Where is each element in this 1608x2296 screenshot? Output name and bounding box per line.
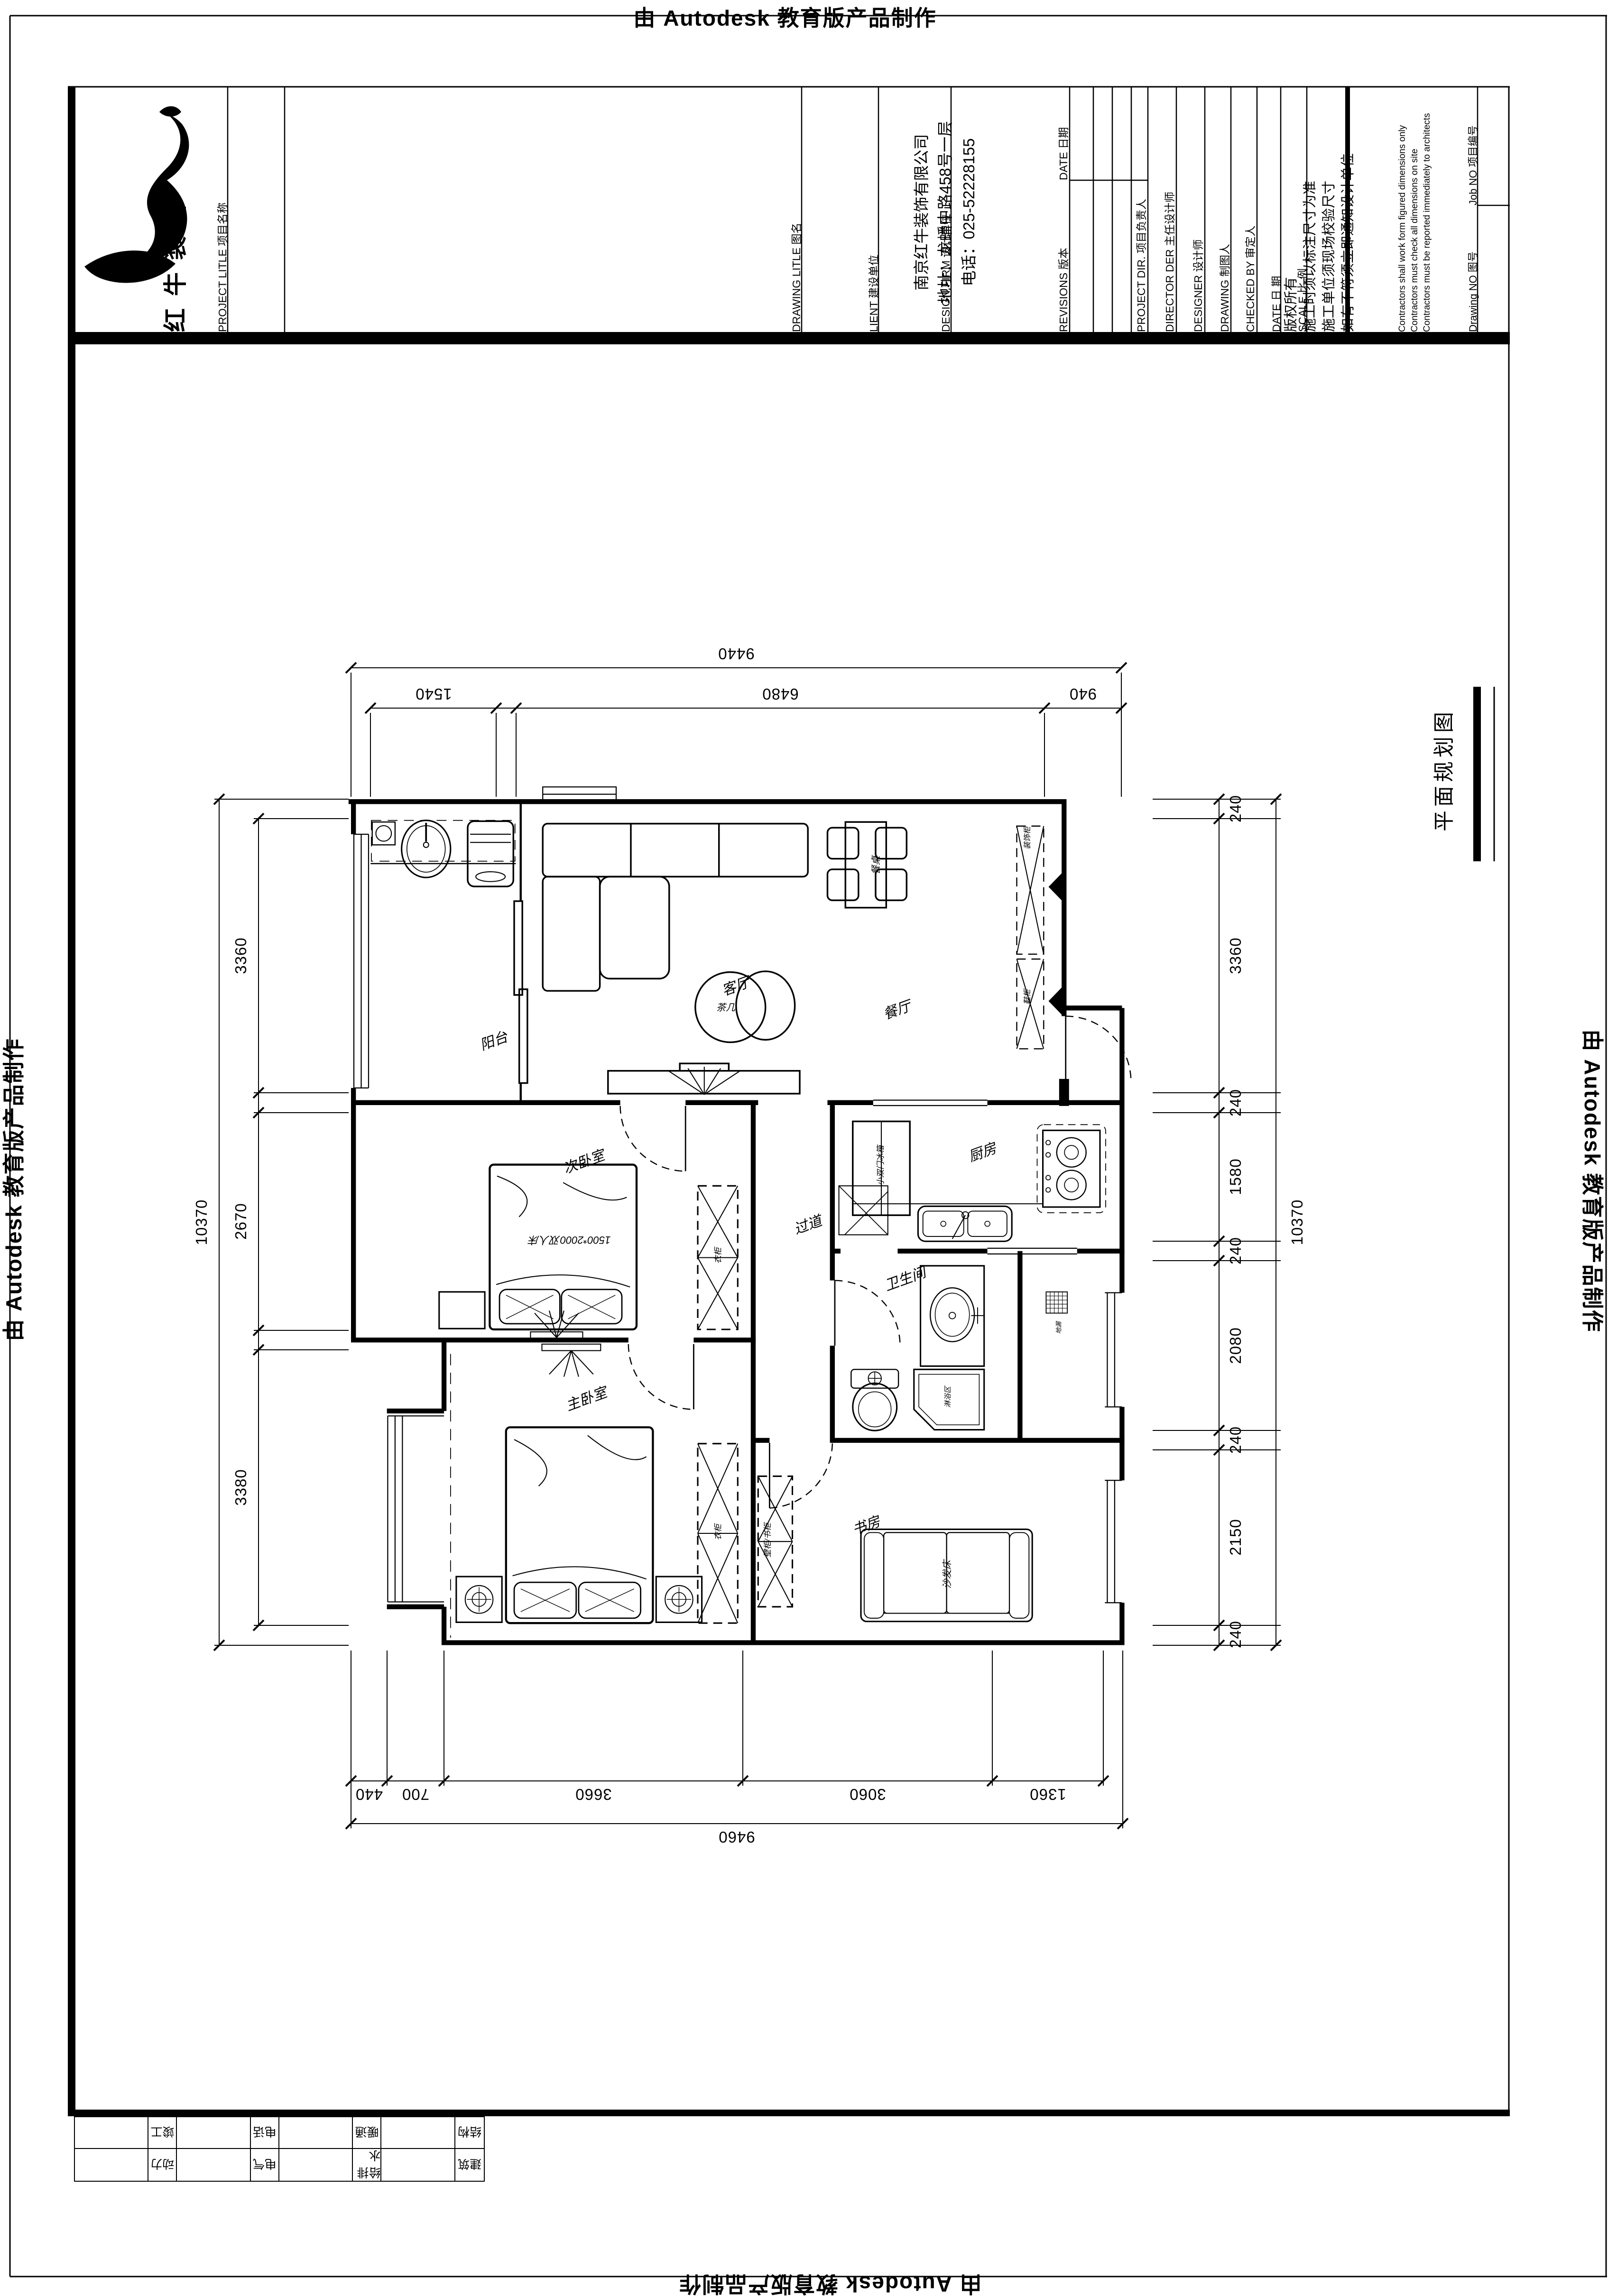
discipline-cell: 结构: [454, 2117, 484, 2148]
design-firm-info: 南京红牛装饰有限公司 地址：龙蟠中路458号一层 电话：025-52228155: [910, 92, 981, 332]
dim-right-seg: 2080: [1226, 1308, 1245, 1383]
sheet-border: [10, 16, 1607, 2277]
study-furniture: [758, 1476, 1032, 1622]
door-arc-bedroom2: [620, 1106, 686, 1171]
discipline-cell: 暖通: [352, 2117, 382, 2148]
dim-bottom-overall: 9460: [689, 1827, 784, 1846]
label-dining-table: 餐桌: [869, 847, 882, 875]
job-no-label: Job NO 项目编号: [1465, 94, 1482, 205]
dim-bottom-seg: 1360: [1000, 1785, 1095, 1804]
label-wardrobe2: 衣柜: [712, 1248, 723, 1264]
drawing-sheet: 由 Autodesk 教育版产品制作 由 Autodesk 教育版产品制作 由 …: [0, 0, 1608, 2296]
dim-right-seg: 240: [1226, 1402, 1245, 1478]
firm-address: 地址：龙蟠中路458号一层: [933, 92, 957, 332]
dim-bottom-seg: 3060: [820, 1785, 915, 1804]
nightstand: [439, 1292, 485, 1328]
dim-right-seg: 3360: [1226, 918, 1245, 994]
label-shower: 淋浴区: [943, 1386, 952, 1408]
discipline-blank: [75, 2117, 148, 2148]
discipline-row: 结构 暖通 电话 竣工: [75, 2117, 484, 2149]
note-line: 版权所有: [1282, 92, 1301, 332]
dim-top-seg: 6480: [733, 684, 828, 703]
discipline-blank: [177, 2149, 250, 2181]
designer-label: DESIGNER 设计师: [1190, 92, 1207, 332]
label-floor-drain: 地漏: [1054, 1321, 1063, 1334]
note-line: Contractors must check all dimensions on…: [1409, 92, 1421, 332]
firm-name: 南京红牛装饰有限公司: [910, 92, 933, 332]
discipline-table: 建筑 给排水 电气 动力 结构 暖通 电话 竣工: [74, 2116, 485, 2182]
firm-phone: 电话：025-52228155: [957, 92, 981, 332]
discipline-blank: [177, 2117, 250, 2148]
note-line: 施工单位须现场校验尺寸: [1320, 92, 1339, 332]
discipline-blank: [382, 2149, 455, 2181]
dim-left-overall: 10370: [192, 1184, 211, 1260]
dim-bottom-seg: 3660: [546, 1785, 641, 1804]
drawing-by-label: DRAWING 制图人: [1216, 92, 1233, 332]
drawing-title-bars: [1473, 687, 1494, 861]
discipline-cell: 建筑: [454, 2149, 484, 2181]
bedroom2-furniture: [439, 1165, 738, 1338]
watermark-right: 由 Autodesk 教育版产品制作: [1578, 979, 1608, 1383]
dim-top-overall: 9440: [689, 644, 784, 663]
dim-right-overall: 10370: [1288, 1184, 1307, 1260]
entry-wall-fill: [1059, 1079, 1069, 1106]
discipline-blank: [75, 2149, 148, 2181]
sliding-door-panel: [519, 989, 527, 1083]
dining-chair: [827, 828, 858, 858]
revision-date-label: DATE 日期: [1055, 92, 1072, 180]
walls: [349, 802, 1125, 1642]
drawing-title-label: DRAWING LITLE 图名: [788, 92, 805, 332]
dim-right-seg: 240: [1226, 1065, 1245, 1141]
pillow-icon: [499, 1290, 560, 1324]
master-bed: [506, 1427, 653, 1623]
label-bed2: 1500*2000双人床: [529, 1233, 610, 1248]
discipline-cell: 电话: [250, 2117, 279, 2148]
dim-right-seg: 240: [1226, 1596, 1245, 1672]
living-room-furniture: [543, 824, 808, 1095]
dim-right-seg: 1580: [1226, 1139, 1245, 1215]
label-deco-cabinet: 装饰柜: [1021, 827, 1032, 849]
dim-top-seg: 940: [1035, 684, 1130, 703]
logo-text: 红牛装饰: [161, 95, 190, 332]
dining-chair: [827, 869, 858, 900]
client-label: LIENT 建设单位: [865, 92, 882, 332]
dim-top-seg: 1540: [386, 684, 481, 703]
stove-icon: [1043, 1130, 1100, 1207]
balcony-fixtures: [370, 821, 516, 886]
dim-left-seg: 3360: [231, 918, 250, 994]
discipline-cell: 竣工: [148, 2117, 177, 2148]
door-arc-master: [628, 1344, 694, 1410]
note-line: Contractors must be reported immediately…: [1421, 92, 1433, 332]
sliding-door-panel: [514, 901, 522, 995]
label-shoe-cabinet: 鞋柜: [1021, 989, 1032, 1005]
discipline-blank: [279, 2149, 352, 2181]
ceiling-light-icon: [549, 1351, 593, 1377]
project-dir-label: PROJECT DIR. 项目负责人: [1133, 92, 1150, 332]
discipline-cell: 给排水: [352, 2149, 382, 2181]
dim-right-seg: 240: [1226, 1213, 1245, 1289]
drawing-no-label: Drawing NO 图号: [1465, 211, 1482, 332]
discipline-row: 建筑 给排水 电气 动力: [75, 2149, 484, 2181]
project-title-label: PROJECT LITLE 项目名称: [214, 92, 231, 332]
discipline-cell: 动力: [148, 2149, 177, 2181]
revisions-label: REVISIONS 版本: [1055, 190, 1072, 332]
notes-cn: 版权所有 施工时须以标注尺寸为准 施工单位须现场校验尺寸 如有不符须立即通知设计…: [1282, 92, 1358, 332]
checked-by-label: CHECKED BY 审定人: [1242, 92, 1259, 332]
basin-icon: [930, 1288, 974, 1342]
doors: [514, 901, 1131, 1508]
dining-furniture: [827, 822, 1044, 1049]
title-block-frame: [68, 87, 1510, 2116]
label-fridge: 小双门冰箱: [874, 1145, 886, 1186]
floor-plan: [349, 787, 1131, 1642]
cad-linework: [0, 0, 1608, 2296]
note-line: 如有不符须立即通知设计单位: [1339, 92, 1358, 332]
watermark-bottom: 由 Autodesk 教育版产品制作: [631, 2270, 1029, 2296]
pillow-icon: [562, 1290, 622, 1324]
note-line: 施工时须以标注尺寸为准: [1301, 92, 1320, 332]
discipline-cell: 电气: [250, 2149, 279, 2181]
label-wall-bookcase: 壁柜/书柜: [761, 1523, 773, 1558]
drawing-title: 平面规划图: [1433, 718, 1455, 831]
discipline-blank: [382, 2117, 455, 2148]
drain-icon: [376, 826, 391, 841]
note-line: Contractors shall work form figured dime…: [1396, 92, 1409, 332]
dim-bottom-seg: 700: [368, 1785, 463, 1804]
dim-right-seg: 2150: [1226, 1499, 1245, 1575]
dim-left-seg: 2670: [231, 1183, 250, 1259]
washing-machine-icon: [468, 821, 513, 886]
bathroom-fixtures: [851, 1266, 1067, 1430]
dim-right-seg: 240: [1226, 771, 1245, 847]
notes-en: Contractors shall work form figured dime…: [1396, 92, 1434, 332]
column-marker-icon: [1049, 987, 1063, 1015]
column-marker-icon: [1049, 873, 1063, 901]
label-tea-table: 茶几: [716, 1000, 735, 1014]
director-label: DIRECTOR DER 主任设计师: [1161, 92, 1178, 332]
watermark-top: 由 Autodesk 教育版产品制作: [586, 1, 984, 32]
label-sofa-bed: 沙发床: [940, 1560, 953, 1589]
discipline-blank: [279, 2117, 352, 2148]
door-arc-study: [769, 1443, 832, 1508]
dim-left-seg: 3380: [231, 1449, 250, 1525]
floor-drain-icon: [1046, 1292, 1067, 1313]
watermark-left: 由 Autodesk 教育版产品制作: [0, 988, 28, 1391]
label-wardrobe-master: 衣柜: [712, 1524, 723, 1540]
